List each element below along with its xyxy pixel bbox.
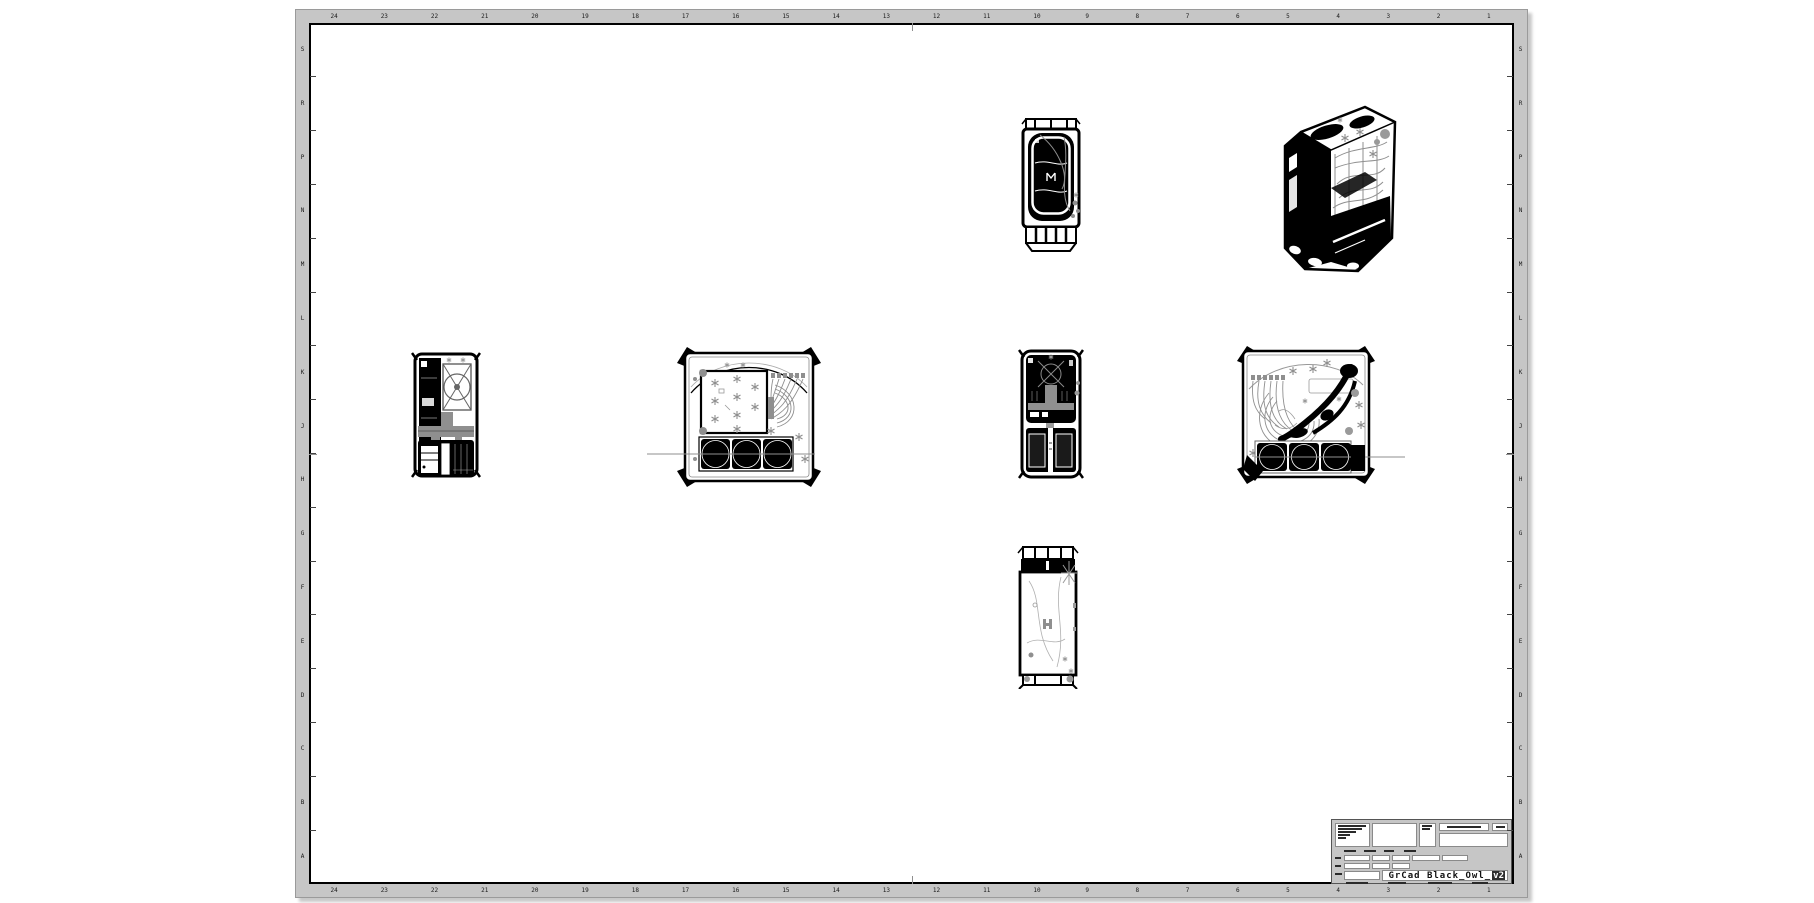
zone-label: 15: [761, 884, 811, 897]
zone-label: 23: [359, 884, 409, 897]
zone-label: 1: [1464, 10, 1514, 23]
left-ruler: SRPNMLKJHGFEDCBA: [296, 23, 309, 884]
zone-label: 10: [1012, 884, 1062, 897]
titleblock-table-cell: [1372, 855, 1390, 861]
zone-label: 23: [359, 10, 409, 23]
drawing-area[interactable]: GrCad Black_Owl_v2: [309, 23, 1514, 884]
zone-label: J: [1514, 400, 1527, 454]
text-line: [1338, 825, 1366, 827]
text-line: [1335, 865, 1341, 867]
zone-label: 3: [1363, 884, 1413, 897]
zone-label: A: [1514, 830, 1527, 884]
side-right-view-drawing: [1235, 341, 1407, 491]
zone-label: 7: [1162, 10, 1212, 23]
zone-label: P: [1514, 131, 1527, 185]
zone-label: G: [296, 507, 309, 561]
zone-label: D: [296, 669, 309, 723]
zone-label: 20: [510, 10, 560, 23]
right-ruler: SRPNMLKJHGFEDCBA: [1514, 23, 1527, 884]
zone-label: 9: [1062, 884, 1112, 897]
zone-label: 7: [1162, 884, 1212, 897]
drawing-title: GrCad Black_Owl_: [1388, 871, 1491, 881]
text-line: [1422, 828, 1430, 830]
text-line: [1338, 834, 1350, 836]
titleblock-table-cell: [1412, 855, 1440, 861]
isometric-view-drawing: [1265, 98, 1403, 278]
zone-label: 17: [660, 10, 710, 23]
titleblock-table-cell: [1344, 863, 1370, 869]
text-line: [1335, 857, 1341, 859]
titleblock-empty-cell: [1372, 823, 1417, 847]
zone-label: D: [1514, 669, 1527, 723]
zone-label: L: [296, 292, 309, 346]
zone-label: 12: [911, 10, 961, 23]
zone-label: 2: [1413, 884, 1463, 897]
titleblock-table-cell: [1392, 863, 1410, 869]
zone-label: 5: [1263, 884, 1313, 897]
zone-label: 15: [761, 10, 811, 23]
zone-label: J: [296, 400, 309, 454]
zone-label: 8: [1112, 10, 1162, 23]
zone-label: 22: [409, 10, 459, 23]
zone-label: 14: [811, 884, 861, 897]
zone-label: 21: [460, 884, 510, 897]
zone-label: 17: [660, 884, 710, 897]
zone-label: G: [1514, 507, 1527, 561]
view-bottom[interactable]: [1013, 543, 1083, 689]
zone-label: E: [296, 615, 309, 669]
zone-label: 11: [962, 10, 1012, 23]
text-line: [1404, 850, 1416, 852]
bottom-ruler: 242322212019181716151413121110987654321: [309, 884, 1514, 897]
zone-label: 4: [1313, 10, 1363, 23]
drawing-title-version: v2: [1492, 871, 1505, 881]
drawing-title-cell: GrCad Black_Owl_v2: [1382, 870, 1508, 881]
drawing-sheet[interactable]: 242322212019181716151413121110987654321 …: [295, 9, 1528, 898]
text-line: [1335, 873, 1342, 875]
zone-label: 2: [1413, 10, 1463, 23]
title-block: GrCad Black_Owl_v2: [1331, 819, 1512, 884]
zone-label: 5: [1263, 10, 1313, 23]
zone-label: 20: [510, 884, 560, 897]
zone-label: 19: [560, 884, 610, 897]
zone-label: 3: [1363, 10, 1413, 23]
zone-label: 13: [861, 10, 911, 23]
titleblock-cell-left-of-title: [1344, 871, 1380, 880]
zone-label: 4: [1313, 884, 1363, 897]
zone-label: C: [1514, 723, 1527, 777]
titleblock-table-cell: [1344, 855, 1370, 861]
zone-label: 19: [560, 10, 610, 23]
zone-label: 24: [309, 884, 359, 897]
zone-label: 11: [962, 884, 1012, 897]
text-line: [1338, 837, 1346, 839]
titleblock-header-cell: [1439, 823, 1489, 831]
zone-label: 1: [1464, 884, 1514, 897]
text-line: [1422, 825, 1432, 827]
app-canvas: { "sheet": { "title": "GrCad Black_Owl_"…: [0, 0, 1814, 903]
zone-label: 8: [1112, 884, 1162, 897]
center-mark-top: [912, 23, 913, 31]
text-line: [1344, 850, 1356, 852]
text-line: [1496, 826, 1505, 828]
zone-label: 16: [711, 10, 761, 23]
zone-label: 21: [460, 10, 510, 23]
top-ruler: 242322212019181716151413121110987654321: [309, 10, 1514, 23]
zone-label: 16: [711, 884, 761, 897]
side-left-view-drawing: [645, 341, 823, 493]
zone-label: 9: [1062, 10, 1112, 23]
zone-label: S: [296, 23, 309, 77]
zone-label: M: [1514, 238, 1527, 292]
zone-label: 22: [409, 884, 459, 897]
view-back[interactable]: [1018, 343, 1084, 485]
zone-label: 10: [1012, 10, 1062, 23]
zone-label: K: [1514, 346, 1527, 400]
titleblock-wide-cell: [1439, 833, 1508, 847]
center-mark-bottom: [912, 876, 913, 884]
text-line: [1384, 850, 1394, 852]
zone-label: P: [296, 131, 309, 185]
text-line: [1364, 850, 1376, 852]
view-isometric[interactable]: [1265, 98, 1403, 278]
zone-label: K: [296, 346, 309, 400]
text-line: [1338, 828, 1362, 830]
zone-label: L: [1514, 292, 1527, 346]
front-view-drawing: [411, 348, 481, 483]
zone-label: 13: [861, 884, 911, 897]
text-line: [1447, 826, 1481, 828]
view-side-left[interactable]: [645, 341, 823, 493]
zone-label: N: [1514, 184, 1527, 238]
view-side-right[interactable]: [1235, 341, 1407, 491]
zone-label: F: [1514, 561, 1527, 615]
zone-label: H: [1514, 454, 1527, 508]
back-view-drawing: [1018, 343, 1084, 485]
zone-label: F: [296, 561, 309, 615]
view-front[interactable]: [411, 348, 481, 483]
zone-label: H: [296, 454, 309, 508]
zone-label: S: [1514, 23, 1527, 77]
zone-label: 18: [610, 884, 660, 897]
view-top[interactable]: [1018, 115, 1084, 255]
titleblock-table-cell: [1372, 863, 1390, 869]
zone-label: R: [296, 77, 309, 131]
text-line: [1338, 831, 1356, 833]
top-view-drawing: [1018, 115, 1084, 255]
titleblock-table-cell: [1442, 855, 1468, 861]
titleblock-small-cell: [1419, 823, 1436, 847]
zone-label: B: [1514, 776, 1527, 830]
bottom-view-drawing: [1013, 543, 1083, 689]
zone-label: R: [1514, 77, 1527, 131]
zone-label: 6: [1213, 884, 1263, 897]
zone-label: M: [296, 238, 309, 292]
zone-label: C: [296, 723, 309, 777]
titleblock-info-cell: [1335, 823, 1370, 847]
zone-label: N: [296, 184, 309, 238]
titleblock-header-cell-2: [1492, 823, 1508, 831]
zone-label: 6: [1213, 10, 1263, 23]
zone-label: A: [296, 830, 309, 884]
zone-label: B: [296, 776, 309, 830]
zone-label: 18: [610, 10, 660, 23]
titleblock-table-cell: [1392, 855, 1410, 861]
zone-label: 14: [811, 10, 861, 23]
zone-label: E: [1514, 615, 1527, 669]
zone-label: 12: [911, 884, 961, 897]
zone-label: 24: [309, 10, 359, 23]
